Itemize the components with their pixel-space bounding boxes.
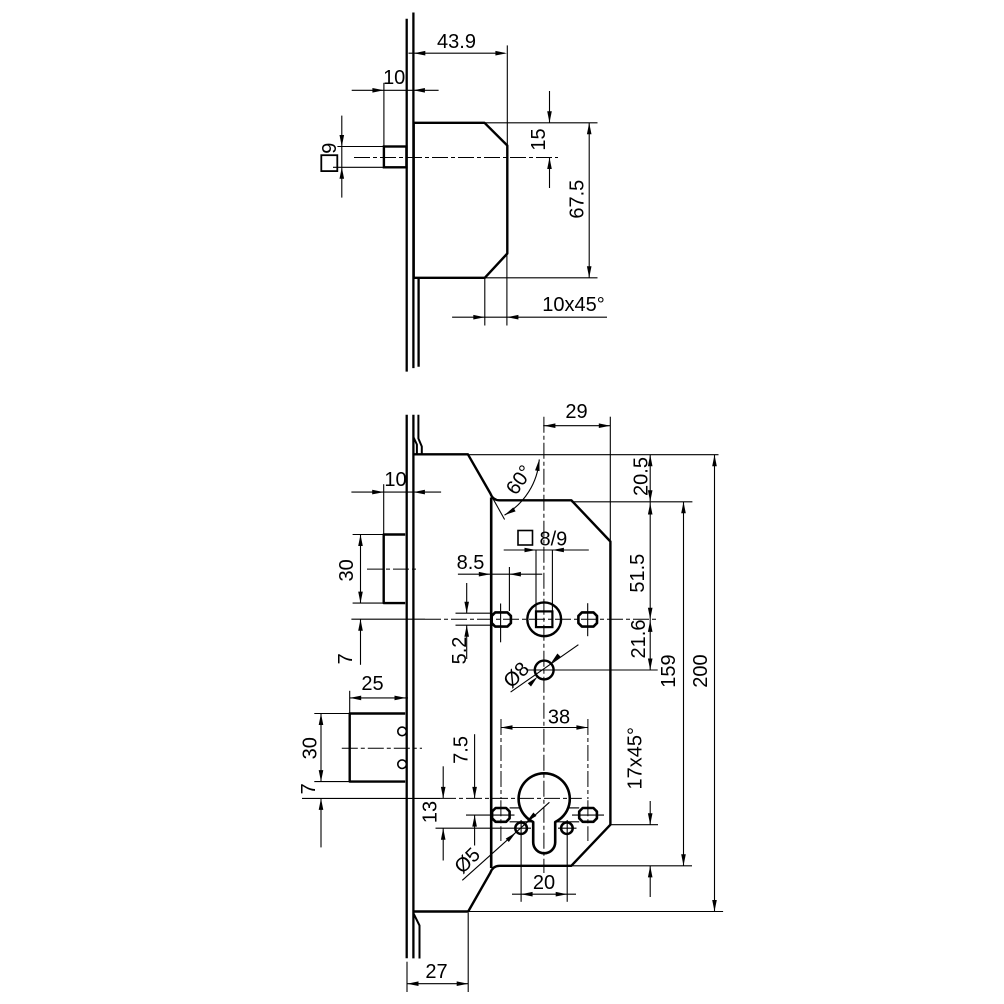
svg-text:8.5: 8.5: [457, 552, 485, 574]
svg-text:159: 159: [658, 654, 680, 687]
svg-text:15: 15: [528, 128, 550, 150]
svg-text:7: 7: [335, 653, 357, 664]
svg-text:5.2: 5.2: [449, 637, 471, 665]
svg-text:10: 10: [384, 469, 406, 491]
svg-text:7: 7: [298, 783, 320, 794]
svg-text:200: 200: [690, 654, 712, 687]
svg-text:25: 25: [361, 673, 383, 695]
svg-text:13: 13: [420, 801, 442, 823]
svg-text:17x45°: 17x45°: [624, 727, 646, 790]
svg-text:21.6: 21.6: [628, 620, 650, 659]
svg-text:20.5: 20.5: [630, 457, 652, 496]
svg-text:38: 38: [548, 707, 570, 729]
svg-text:9: 9: [319, 143, 341, 154]
svg-text:30: 30: [336, 559, 358, 581]
svg-text:10: 10: [383, 67, 405, 89]
svg-text:8/9: 8/9: [539, 529, 567, 551]
svg-text:67.5: 67.5: [566, 180, 588, 219]
svg-text:29: 29: [565, 401, 587, 423]
svg-text:43.9: 43.9: [437, 31, 476, 53]
svg-text:20: 20: [533, 872, 555, 894]
svg-text:7.5: 7.5: [451, 736, 473, 764]
svg-text:10x45°: 10x45°: [542, 294, 605, 316]
svg-text:51.5: 51.5: [627, 554, 649, 593]
svg-text:27: 27: [425, 961, 447, 983]
svg-text:30: 30: [299, 737, 321, 759]
